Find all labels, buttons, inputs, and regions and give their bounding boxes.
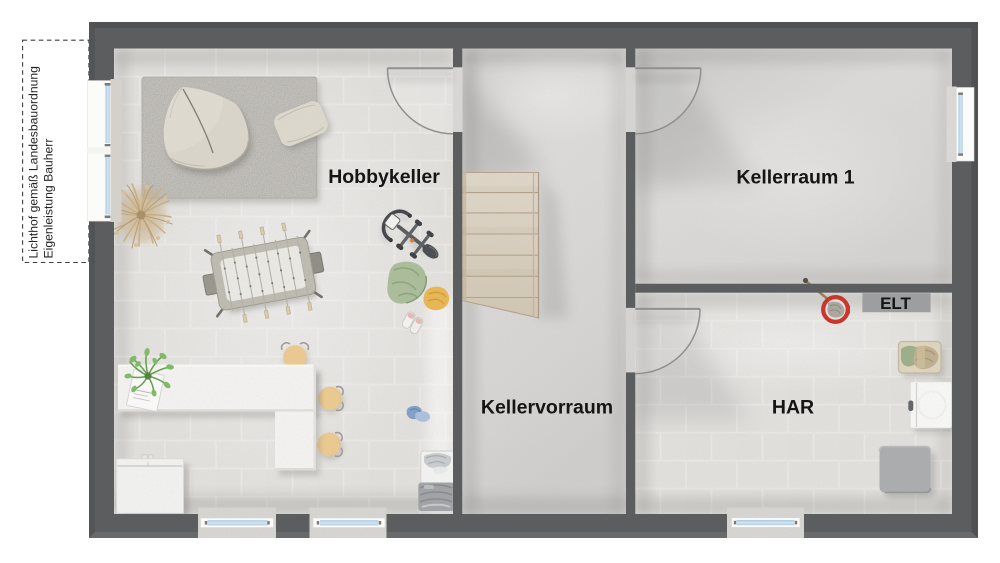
svg-text:Lichthof gemäß Landesbauordnun: Lichthof gemäß Landesbauordnung	[27, 66, 41, 258]
svg-text:Kellerraum 1: Kellerraum 1	[736, 167, 854, 189]
svg-text:Hobbykeller: Hobbykeller	[328, 166, 440, 188]
svg-text:Kellervorraum: Kellervorraum	[481, 397, 613, 419]
svg-text:HAR: HAR	[772, 397, 814, 419]
svg-text:Eigenleistung Bauherr: Eigenleistung Bauherr	[42, 139, 56, 259]
svg-text:ELT: ELT	[880, 294, 911, 313]
